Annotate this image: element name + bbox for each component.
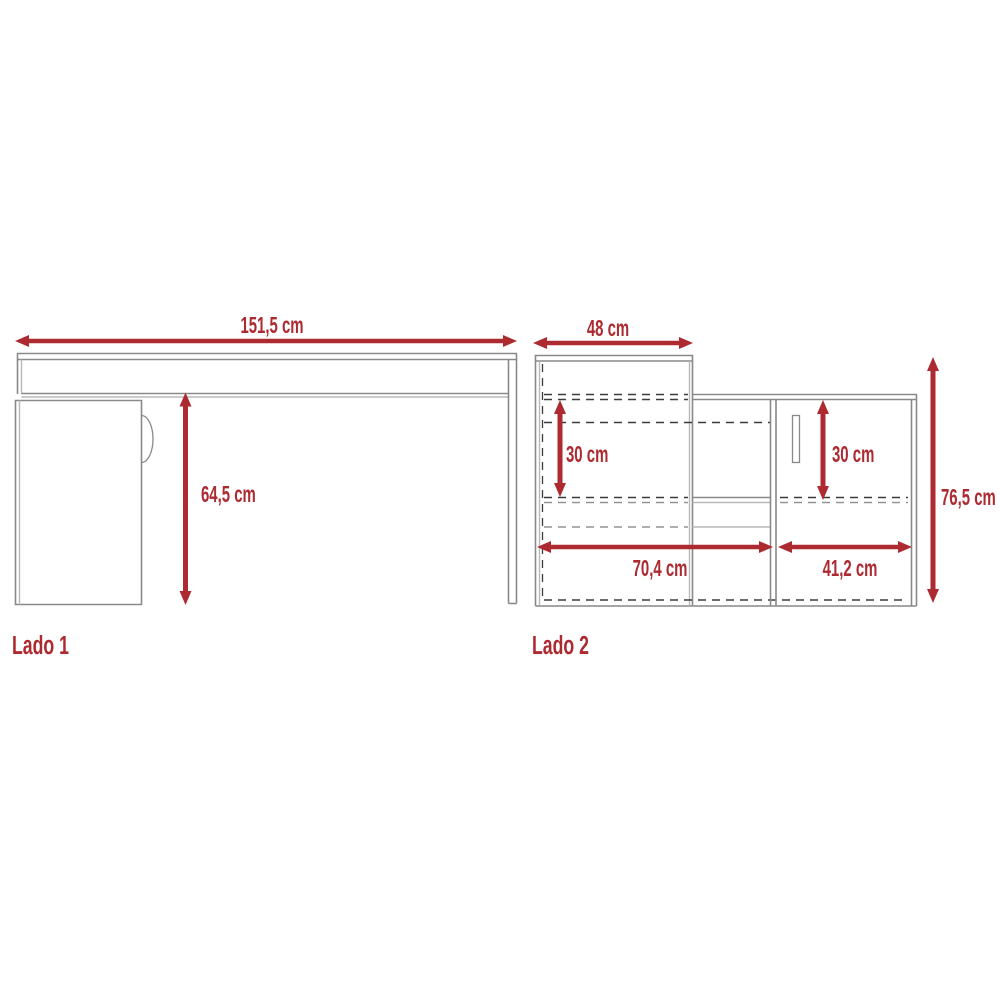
side2-door-handle [793,416,800,463]
side2-bottom-left-dim-label: 70,4 cm [633,556,688,582]
side2-top-arrowhead-left [533,337,547,349]
side1-width-dim-label: 151,5 cm [240,313,303,339]
side2-top-dim-label: 48 cm [587,316,629,342]
side1-width-arrowhead-right [503,335,517,347]
side2-height-arrowhead-bottom [927,589,939,603]
side2-bottom-right-arrowhead-left [778,541,792,553]
side1-height-arrowhead-bottom [180,591,192,605]
side1-cabinet-outline [16,401,142,605]
furniture-dimension-diagram: 151,5 cm 64,5 cm Lado 1 [0,0,1000,1000]
side1-caption: Lado 1 [12,631,69,660]
side2-left-shelf-arrowhead-top [554,400,566,414]
side2-bottom-right-dim-label: 41,2 cm [823,556,878,582]
side2-height-dim-label: 76,5 cm [941,485,996,511]
side2-door-dim-label: 30 cm [832,442,874,468]
side2-left-shelf-dim-label: 30 cm [566,442,608,468]
side2-top-arrowhead-right [679,337,693,349]
side1-drawing [16,354,518,605]
side2-dimensions: 48 cm 30 cm 30 cm 70,4 cm 41,2 cm [532,316,996,660]
diagram-page: 151,5 cm 64,5 cm Lado 1 [0,0,1000,1000]
side1-height-arrowhead-top [180,393,192,407]
side2-bottom-right-arrowhead-right [898,541,912,553]
side1-cabinet-handle-arc [142,416,154,463]
side2-left-shelf-arrowhead-bottom [554,483,566,497]
side1-width-arrowhead-left [15,335,29,347]
side1-height-dim-label: 64,5 cm [201,482,256,508]
side2-height-arrowhead-top [927,357,939,371]
side2-caption: Lado 2 [532,631,589,660]
side2-door-arrowhead-top [817,400,829,414]
side1-dimensions: 151,5 cm 64,5 cm Lado 1 [12,313,517,660]
